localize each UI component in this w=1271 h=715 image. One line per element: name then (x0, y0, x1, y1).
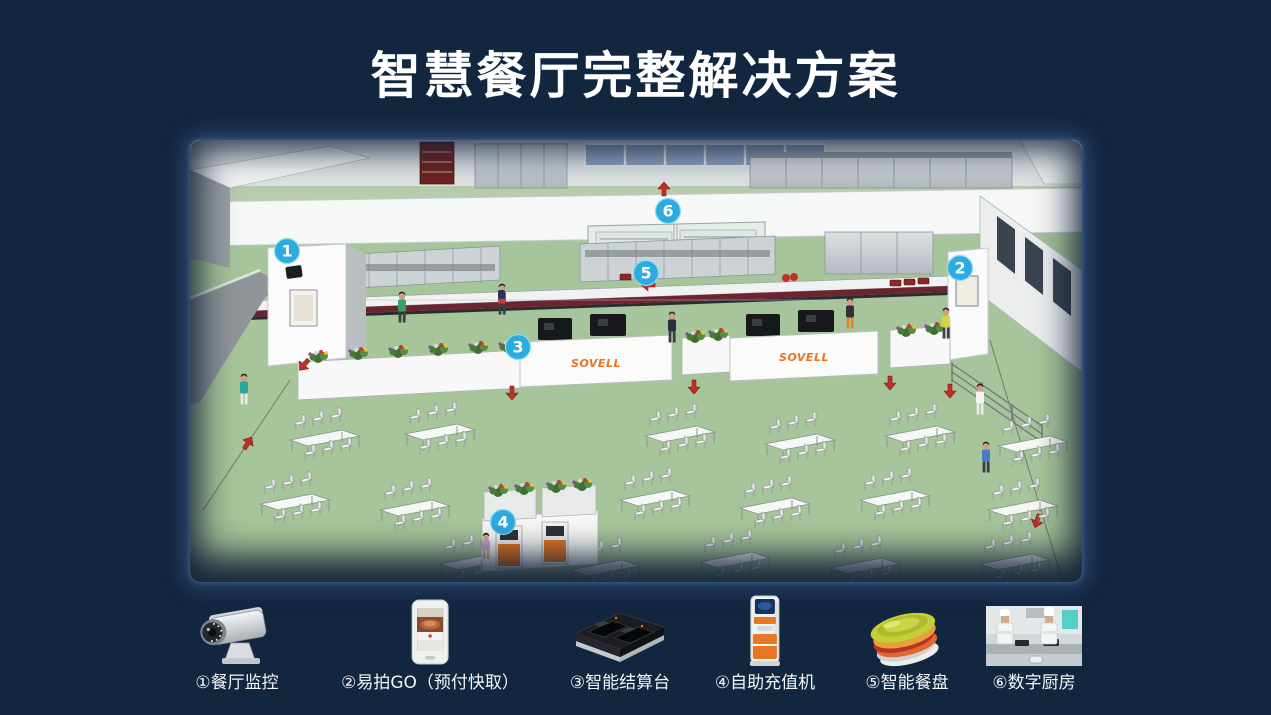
svg-text:5: 5 (640, 264, 651, 283)
legend-item-digital-kitchen: ⑥数字厨房 (984, 596, 1084, 693)
cctv-camera-icon (195, 596, 279, 668)
slide: 智慧餐厅完整解决方案 (0, 0, 1271, 715)
counter-brand-text: SOVELL (779, 351, 829, 364)
legend-label-digital-kitchen: ⑥数字厨房 (984, 673, 1084, 693)
legend-label-easypai-go: ②易拍GO（预付快取） (341, 673, 519, 693)
scene-marker-5: 5 (634, 261, 659, 286)
legend-label-smart-plates: ⑤智能餐盘 (864, 673, 950, 693)
scene-marker-2: 2 (948, 256, 973, 281)
legend-item-smart-plates: ⑤智能餐盘 (864, 596, 950, 693)
scene-marker-6: 6 (656, 199, 681, 224)
right-planter (890, 322, 950, 368)
self-recharge-kiosk-icon (715, 596, 815, 668)
legend-label-monitoring: ①餐厅监控 (195, 673, 279, 693)
scene-marker-3: 3 (506, 335, 531, 360)
restaurant-3d-scene: SOVELL SOVELL (190, 140, 1082, 582)
scene-marker-1: 1 (275, 239, 300, 264)
svg-text:2: 2 (954, 259, 965, 278)
legend-label-recharge-kiosk: ④自助充值机 (715, 673, 815, 693)
counter-brand-text: SOVELL (571, 357, 621, 370)
legend-item-checkout: ③智能结算台 (569, 596, 671, 693)
svg-text:3: 3 (512, 338, 523, 357)
restaurant-floorplan-illustration: SOVELL SOVELL (190, 140, 1082, 582)
legend-item-monitoring: ①餐厅监控 (195, 596, 279, 693)
legend-row: ①餐厅监控 ②易拍GO（预付快取） (0, 596, 1271, 706)
page-title: 智慧餐厅完整解决方案 (0, 36, 1271, 108)
smart-checkout-terminal-icon (569, 596, 671, 668)
easypai-go-device-icon (341, 596, 519, 668)
legend-label-checkout: ③智能结算台 (569, 673, 671, 693)
legend-item-easypai-go: ②易拍GO（预付快取） (341, 596, 519, 693)
svg-text:6: 6 (662, 202, 673, 221)
digital-kitchen-icon (984, 596, 1084, 668)
scene-marker-4: 4 (491, 510, 516, 535)
smart-plates-icon (864, 596, 950, 668)
legend-item-recharge-kiosk: ④自助充值机 (715, 596, 815, 693)
svg-text:4: 4 (497, 513, 508, 532)
svg-text:1: 1 (281, 242, 292, 261)
